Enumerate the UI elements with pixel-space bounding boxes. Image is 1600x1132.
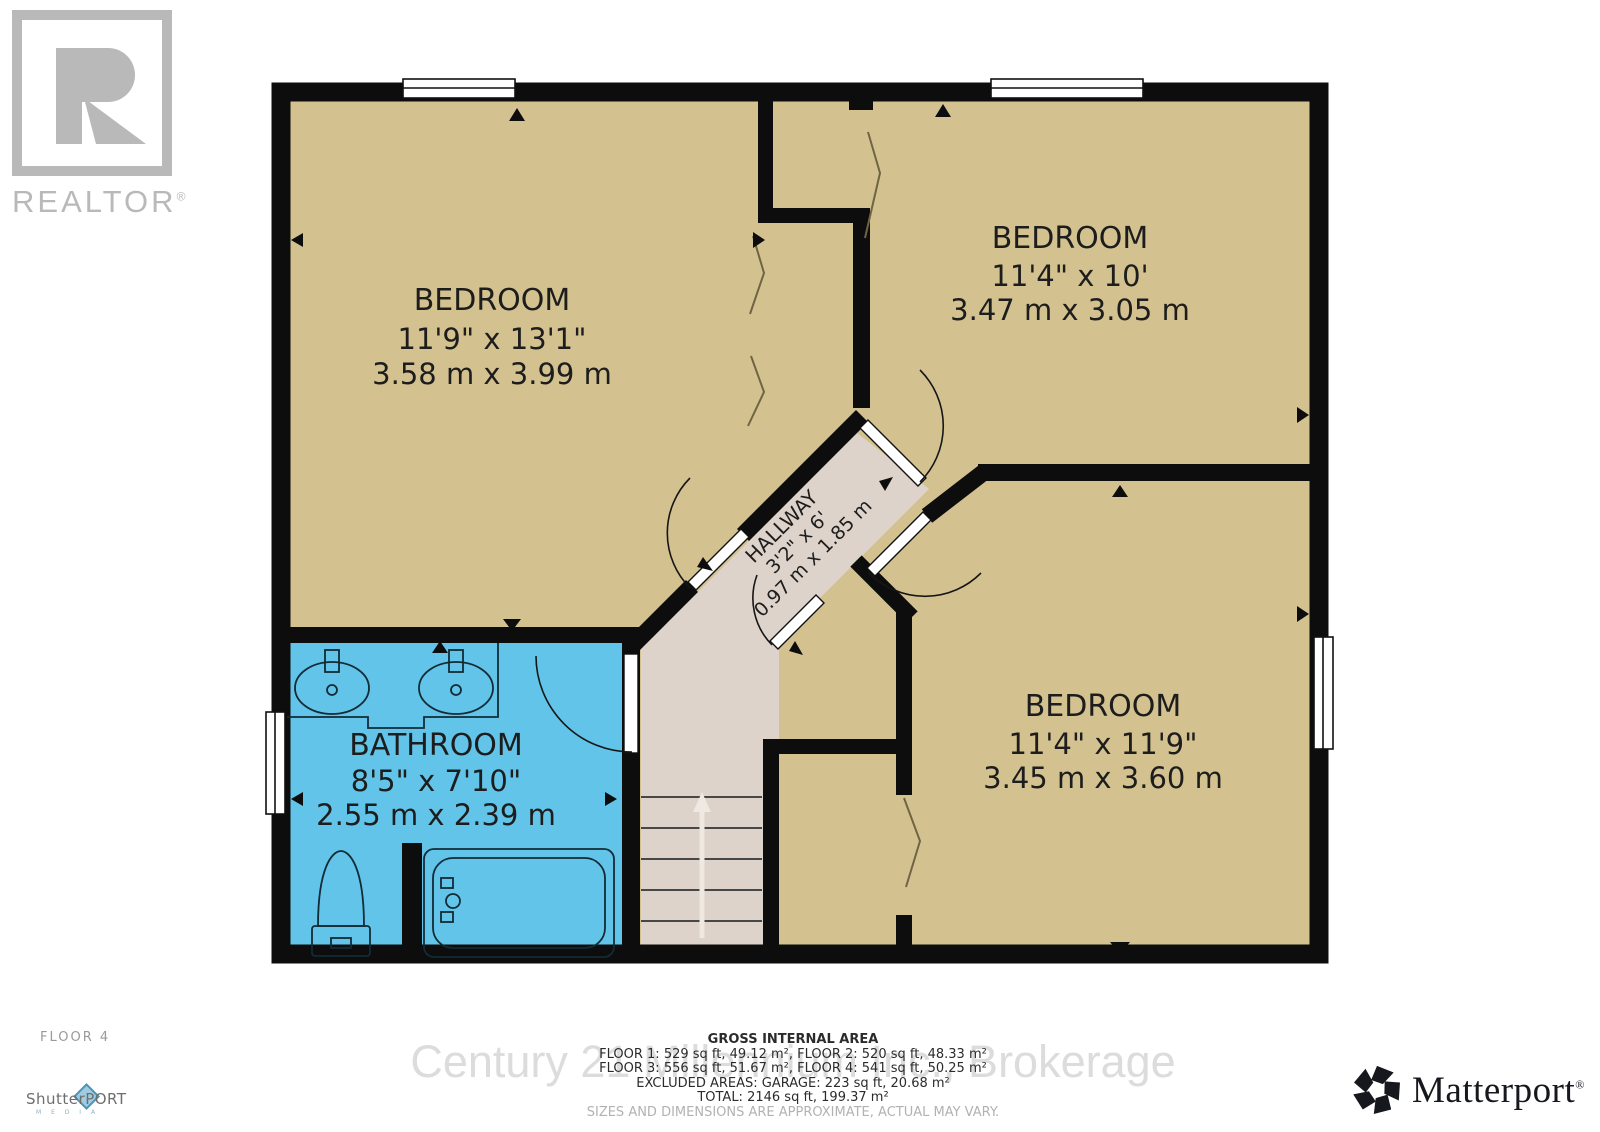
matterport-wordmark: Matterport®: [1412, 1069, 1585, 1112]
floorplan-drawing: BEDROOM 11'9" x 13'1" 3.58 m x 3.99 m BE…: [0, 0, 1600, 1132]
wall-bedroom1-bottom: [277, 627, 640, 643]
area-excluded: EXCLUDED AREAS: GARAGE: 223 sq ft, 20.68…: [587, 1077, 1000, 1092]
matterport-logo: Matterport®: [1352, 1064, 1585, 1116]
area-total: TOTAL: 2146 sq ft, 199.37 m²: [587, 1091, 1000, 1106]
bathroom-dim-m: 2.55 m x 2.39 m: [316, 798, 556, 832]
matterport-registered-mark: ®: [1575, 1077, 1585, 1091]
bedroom1-dim-ft: 11'9" x 13'1": [398, 322, 587, 356]
shutterport-media-label: M E D I A: [36, 1109, 136, 1116]
bedroom1-name: BEDROOM: [414, 283, 571, 318]
wall-bedroom3-west-upper: [896, 607, 912, 795]
bathroom-dim-ft: 8'5" x 7'10": [351, 764, 521, 798]
wall-bedroom3-west-lower: [896, 915, 912, 949]
wall-bathroom-stub: [402, 843, 422, 949]
bedroom3-dim-m: 3.45 m x 3.60 m: [983, 761, 1223, 795]
bedroom1-dim-m: 3.58 m x 3.99 m: [372, 357, 612, 391]
bedroom2-dim-ft: 11'4" x 10': [991, 259, 1148, 293]
shutterport-wordmark: ShutterPORT: [26, 1090, 136, 1108]
floor-number-label: FLOOR 4: [40, 1030, 110, 1045]
wall-bedroom2-bedroom3-divider: [978, 464, 1319, 481]
area-disclaimer: SIZES AND DIMENSIONS ARE APPROXIMATE, AC…: [587, 1106, 1000, 1121]
area-floor-1-2: FLOOR 1: 529 sq ft, 49.12 m², FLOOR 2: 5…: [587, 1048, 1000, 1063]
door-leaf-bathroom: [624, 654, 638, 753]
wall-stairs-east: [763, 739, 779, 949]
matterport-pinwheel-icon: [1352, 1064, 1402, 1116]
floorplan-page: REALTOR®: [0, 0, 1600, 1132]
area-summary-title: GROSS INTERNAL AREA: [587, 1033, 1000, 1048]
bedroom3-dim-ft: 11'4" x 11'9": [1009, 727, 1198, 761]
wall-bedroom2-west: [853, 208, 870, 408]
area-summary: GROSS INTERNAL AREA FLOOR 1: 529 sq ft, …: [587, 1033, 1000, 1120]
wall-closet2-top: [763, 739, 903, 754]
area-floor-3-4: FLOOR 3: 556 sq ft, 51.67 m², FLOOR 4: 5…: [587, 1062, 1000, 1077]
wall-closet-left: [758, 97, 773, 223]
shutterport-logo: ShutterPORT M E D I A: [26, 1090, 136, 1116]
bedroom2-dim-m: 3.47 m x 3.05 m: [950, 293, 1190, 327]
bedroom2-name: BEDROOM: [992, 221, 1149, 256]
bedroom3-name: BEDROOM: [1025, 689, 1182, 724]
bathroom-name: BATHROOM: [349, 728, 523, 763]
